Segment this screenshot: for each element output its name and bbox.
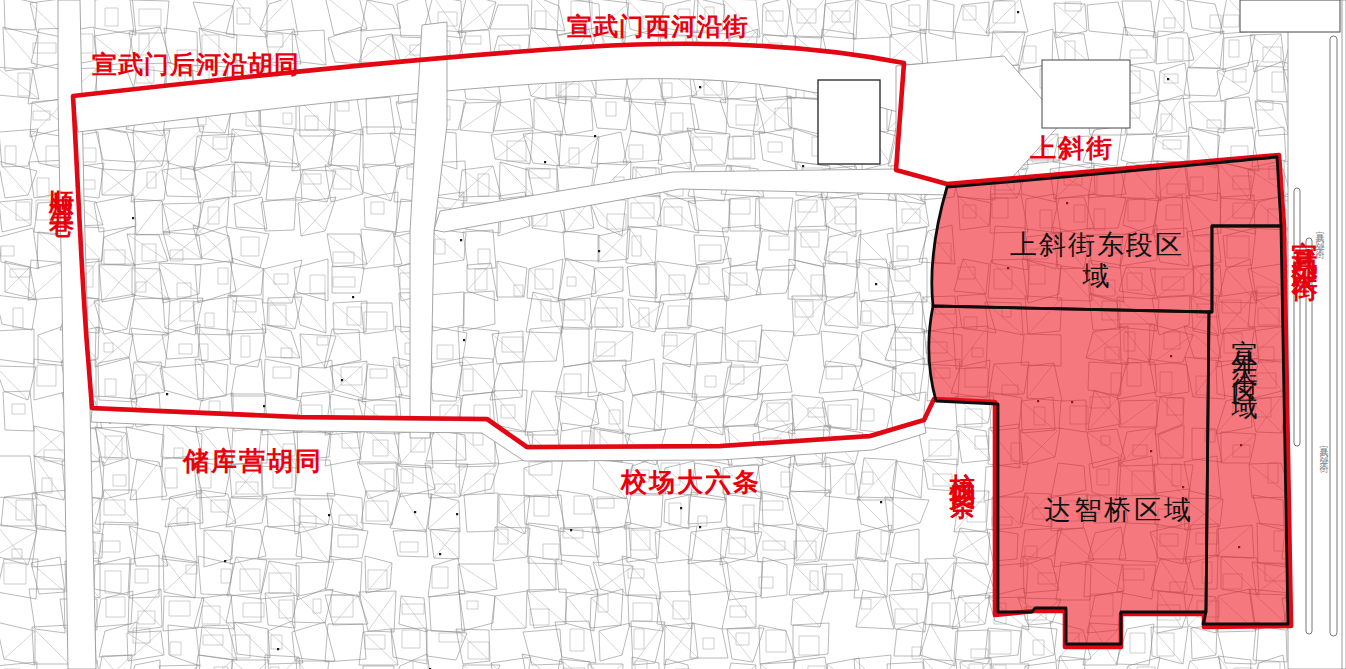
building-top-center — [818, 80, 880, 164]
building-top-corner — [1240, 0, 1340, 32]
map: 宣武门后河沿胡同 宣武门西河沿街 上斜街 顺河三巷 储库营胡同 校场大六条 校场… — [0, 0, 1346, 669]
building-large-topright — [1042, 60, 1130, 128]
region-xuanwai-dajie — [1203, 226, 1288, 624]
map-image — [0, 0, 1346, 669]
